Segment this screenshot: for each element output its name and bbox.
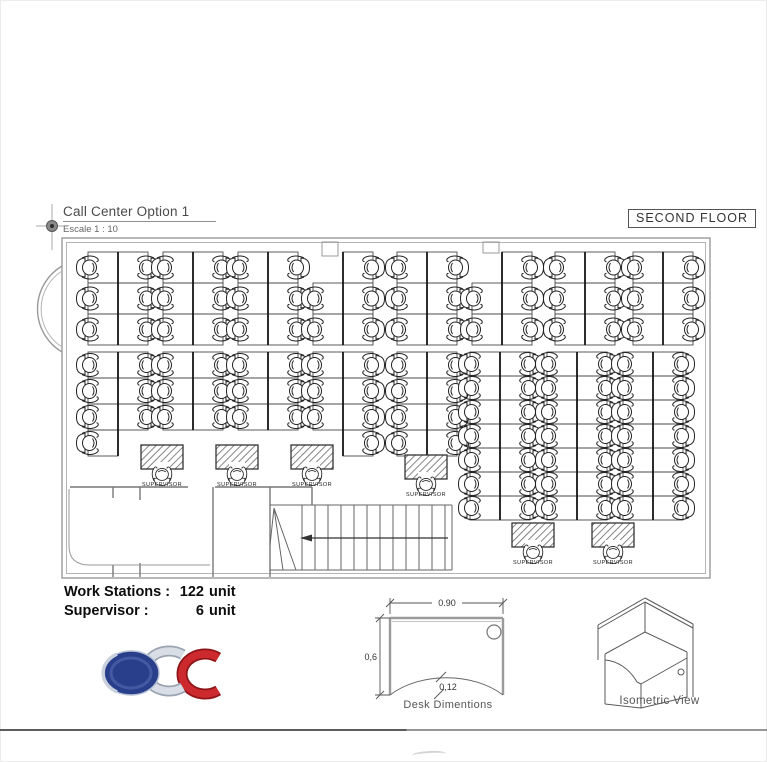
chair-icon <box>683 256 705 279</box>
chair-icon <box>227 256 249 279</box>
supervisor-station-label: SUPERVISOR <box>217 482 257 488</box>
chair-icon <box>612 352 634 375</box>
chair-icon <box>459 448 481 471</box>
chair-icon <box>612 472 634 495</box>
chair-icon <box>522 287 544 310</box>
chair-icon <box>622 256 644 279</box>
chair-icon <box>544 318 566 341</box>
chair-icon <box>77 256 99 279</box>
chair-icon <box>363 318 385 341</box>
desk-curve-dimension: 0,12 <box>439 682 457 692</box>
chair-icon <box>288 256 310 279</box>
supervisor-station: SUPERVISOR <box>141 445 183 488</box>
supervisor-station: SUPERVISOR <box>405 455 447 498</box>
workstation-cluster <box>386 252 469 345</box>
chair-icon <box>459 472 481 495</box>
summary-block: Work Stations :122unit Supervisor :6unit <box>64 583 236 621</box>
chair-icon <box>227 379 249 402</box>
chair-icon <box>77 431 99 454</box>
chair-icon <box>536 424 558 447</box>
chair-icon <box>612 400 634 423</box>
chair-icon <box>386 287 408 310</box>
chair-icon <box>544 256 566 279</box>
chair-icon <box>363 379 385 402</box>
chair-icon <box>612 376 634 399</box>
chair-icon <box>612 496 634 519</box>
chair-icon <box>673 376 695 399</box>
chair-icon <box>77 405 99 428</box>
workstation-cluster <box>622 252 705 345</box>
chair-icon <box>461 318 483 341</box>
workstation-cluster <box>302 252 385 345</box>
chair-icon <box>152 353 174 376</box>
chair-icon <box>673 472 695 495</box>
desk-width-dimension: 0.90 <box>438 598 456 608</box>
cabinet-knob <box>678 669 684 675</box>
chair-icon <box>227 318 249 341</box>
title-underline <box>63 221 216 222</box>
chair-icon <box>77 353 99 376</box>
floor-plan-canvas: SUPERVISORSUPERVISORSUPERVISORSUPERVISOR… <box>0 0 767 762</box>
chair-icon <box>612 424 634 447</box>
chair-icon <box>622 318 644 341</box>
chair-icon <box>386 431 408 454</box>
chair-icon <box>673 352 695 375</box>
workstations-count-row: Work Stations :122unit <box>64 583 236 602</box>
workstation-cluster <box>386 352 469 456</box>
chair-icon <box>363 256 385 279</box>
chair-icon <box>459 376 481 399</box>
workstations-value: 122 <box>174 583 204 602</box>
chair-icon <box>447 256 469 279</box>
title-block: Call Center Option 1 Escale 1 : 10 <box>63 204 216 235</box>
chair-icon <box>363 431 385 454</box>
chair-icon <box>227 405 249 428</box>
chair-icon <box>386 405 408 428</box>
isometric-view-drawing <box>598 598 693 708</box>
workstation-cluster <box>77 252 160 345</box>
desk-dimensions-caption: Desk Dimentions <box>383 699 513 711</box>
supervisor-station: SUPERVISOR <box>592 523 634 566</box>
chair-icon <box>683 287 705 310</box>
workstation-cluster <box>227 352 310 430</box>
chair-icon <box>386 353 408 376</box>
supervisor-station-label: SUPERVISOR <box>142 482 182 488</box>
supervisor-station: SUPERVISOR <box>291 445 333 488</box>
chair-icon <box>302 379 324 402</box>
chair-icon <box>536 352 558 375</box>
chair-icon <box>673 400 695 423</box>
workstations-unit: unit <box>209 584 236 600</box>
workstations-label: Work Stations : <box>64 583 174 602</box>
workstation-cluster <box>302 352 385 456</box>
chair-icon <box>363 287 385 310</box>
chair-icon <box>152 405 174 428</box>
chair-icon <box>363 353 385 376</box>
chair-icon <box>536 472 558 495</box>
supervisor-station-label: SUPERVISOR <box>406 492 446 498</box>
desk-depth-dimension: 0,6 <box>364 652 377 662</box>
workstation-cluster <box>461 252 544 345</box>
supervisor-label: Supervisor : <box>64 602 174 621</box>
drawing-scale: Escale 1 : 10 <box>63 224 216 235</box>
chair-icon <box>386 379 408 402</box>
drawing-sheet: SUPERVISORSUPERVISORSUPERVISORSUPERVISOR… <box>0 0 767 762</box>
supervisor-station: SUPERVISOR <box>216 445 258 488</box>
supervisor-station-label: SUPERVISOR <box>593 560 633 566</box>
supervisor-station-label: SUPERVISOR <box>513 560 553 566</box>
chair-icon <box>673 496 695 519</box>
chair-icon <box>459 424 481 447</box>
drawing-title: Call Center Option 1 <box>63 204 216 219</box>
workstation-cluster <box>152 252 235 345</box>
supervisor-count-row: Supervisor :6unit <box>64 602 236 621</box>
chair-icon <box>673 424 695 447</box>
cdc-logo <box>103 651 218 695</box>
supervisor-unit: unit <box>209 603 236 619</box>
chair-icon <box>612 448 634 471</box>
chair-icon <box>227 287 249 310</box>
interior-walls <box>69 487 312 577</box>
staircase <box>270 505 452 570</box>
chair-icon <box>77 318 99 341</box>
chair-icon <box>522 318 544 341</box>
chair-icon <box>522 256 544 279</box>
supervisor-value: 6 <box>174 602 204 621</box>
supervisor-station: SUPERVISOR <box>512 523 554 566</box>
chair-icon <box>227 353 249 376</box>
workstation-cluster <box>152 352 235 430</box>
chair-icon <box>673 448 695 471</box>
workstation-cluster <box>459 352 542 520</box>
chair-icon <box>536 496 558 519</box>
wall-notch <box>483 242 499 253</box>
chair-icon <box>683 318 705 341</box>
supervisor-station-label: SUPERVISOR <box>292 482 332 488</box>
workstation-cluster <box>77 352 160 456</box>
chair-icon <box>152 379 174 402</box>
chair-icon <box>363 405 385 428</box>
workstation-cluster <box>544 252 627 345</box>
chair-icon <box>459 352 481 375</box>
chair-icon <box>386 256 408 279</box>
chair-icon <box>77 287 99 310</box>
desk-dimensions-diagram: 0.90 0,6 0,12 <box>364 598 507 699</box>
workstation-cluster <box>612 352 695 520</box>
sheet-bottom-rule <box>0 729 767 731</box>
chair-icon <box>536 400 558 423</box>
workstation-cluster <box>227 252 310 345</box>
chair-icon <box>461 287 483 310</box>
chair-icon <box>459 496 481 519</box>
chair-icon <box>152 287 174 310</box>
chair-icon <box>536 376 558 399</box>
chair-icon <box>536 448 558 471</box>
wall-notch <box>322 242 338 256</box>
floor-label: SECOND FLOOR <box>628 209 756 228</box>
isometric-view-caption: Isometric View <box>597 695 722 707</box>
workstation-cluster <box>536 352 619 520</box>
chair-icon <box>302 287 324 310</box>
chair-icon <box>544 287 566 310</box>
chair-icon <box>302 318 324 341</box>
chair-icon <box>386 318 408 341</box>
chair-icon <box>77 379 99 402</box>
grommet-hole <box>487 625 501 639</box>
chair-icon <box>302 353 324 376</box>
chair-icon <box>152 256 174 279</box>
chair-icon <box>622 287 644 310</box>
chair-icon <box>152 318 174 341</box>
chair-icon <box>302 405 324 428</box>
chair-icon <box>459 400 481 423</box>
